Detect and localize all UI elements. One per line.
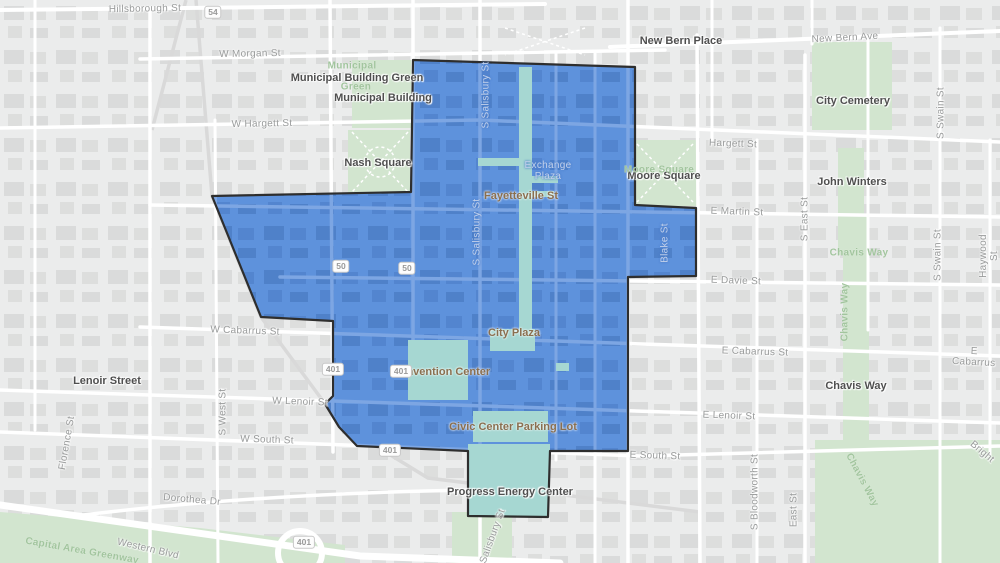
map-canvas[interactable]: New Bern PlaceMunicipal Building GreenMu…	[0, 0, 1000, 563]
progress-energy-center-block	[468, 444, 550, 517]
municipal-building-green-park	[352, 60, 414, 128]
exchange-plaza-west	[478, 158, 519, 166]
basemap	[0, 0, 1000, 563]
nash-square-park	[348, 130, 410, 194]
civic-center-parking-lot-block	[473, 411, 548, 442]
fayetteville-street-mall	[519, 67, 532, 330]
chavis-way-greenway	[843, 215, 869, 443]
chavis-park	[815, 440, 1000, 563]
city-cemetery-park	[812, 42, 892, 130]
plaza-small-block	[556, 363, 569, 371]
city-plaza-area	[490, 329, 535, 351]
exchange-plaza-east2	[532, 191, 554, 197]
exchange-plaza-east1	[532, 176, 558, 183]
convention-center-block	[408, 340, 468, 400]
salisbury-green	[452, 512, 512, 563]
